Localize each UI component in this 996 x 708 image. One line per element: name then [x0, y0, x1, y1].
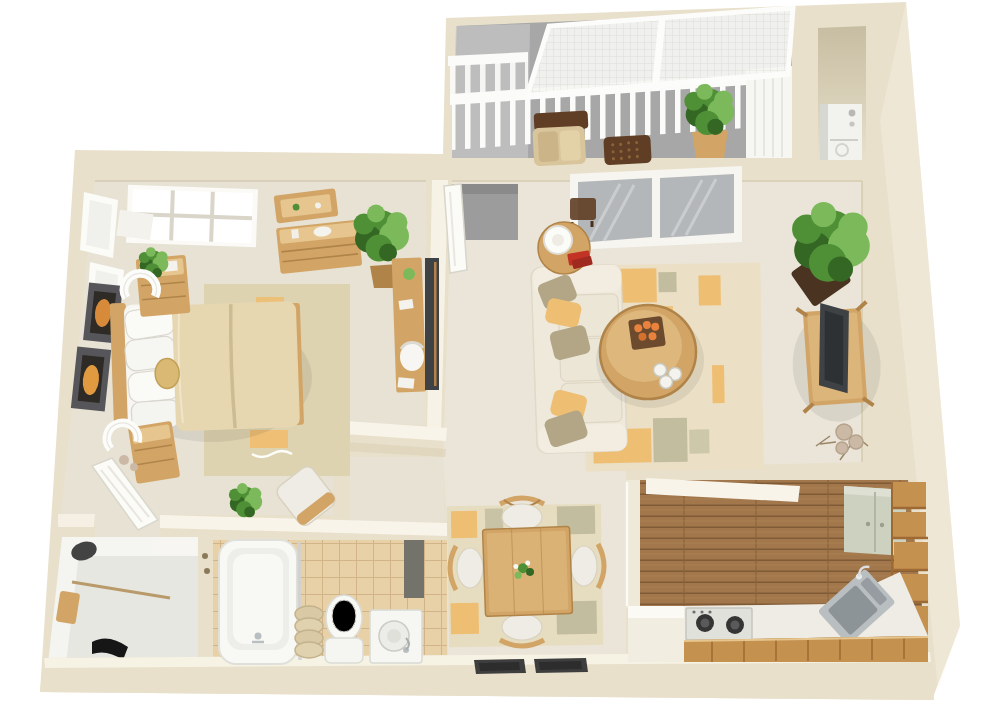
- half-wall: [628, 606, 684, 662]
- base-cabinets: [684, 636, 928, 662]
- door-knob: [202, 553, 208, 559]
- wicker-armchair: [532, 111, 591, 167]
- vanity-sink: [370, 610, 422, 663]
- decor-tray: [628, 316, 666, 350]
- dark-recess: [404, 540, 424, 598]
- duvet: [172, 301, 300, 431]
- closet: [48, 537, 198, 664]
- double-bed: [110, 297, 312, 442]
- laundry-nook: [818, 26, 866, 160]
- wall-tv: [425, 258, 439, 390]
- door-knob: [204, 568, 210, 574]
- toilet: [325, 595, 363, 663]
- framed-art-lower: [71, 346, 111, 411]
- desk: [392, 258, 427, 393]
- dining-table: [483, 526, 573, 616]
- desk-chair: [400, 342, 424, 371]
- hall-niche-floor: [350, 457, 445, 522]
- stacked-washer-dryer: [820, 104, 862, 160]
- cooktop-stove: [686, 608, 752, 640]
- window-shade: [116, 210, 153, 240]
- floor-plan-screenshot: [0, 0, 996, 708]
- round-cushion: [155, 358, 180, 389]
- closet-shelf: [152, 540, 196, 554]
- balcony: [448, 8, 793, 166]
- dresser: [276, 220, 362, 274]
- bathtub: [219, 540, 297, 664]
- rolled-towels: [295, 606, 323, 658]
- floor-plan-render: [0, 0, 996, 708]
- lattice-ottoman: [603, 135, 651, 165]
